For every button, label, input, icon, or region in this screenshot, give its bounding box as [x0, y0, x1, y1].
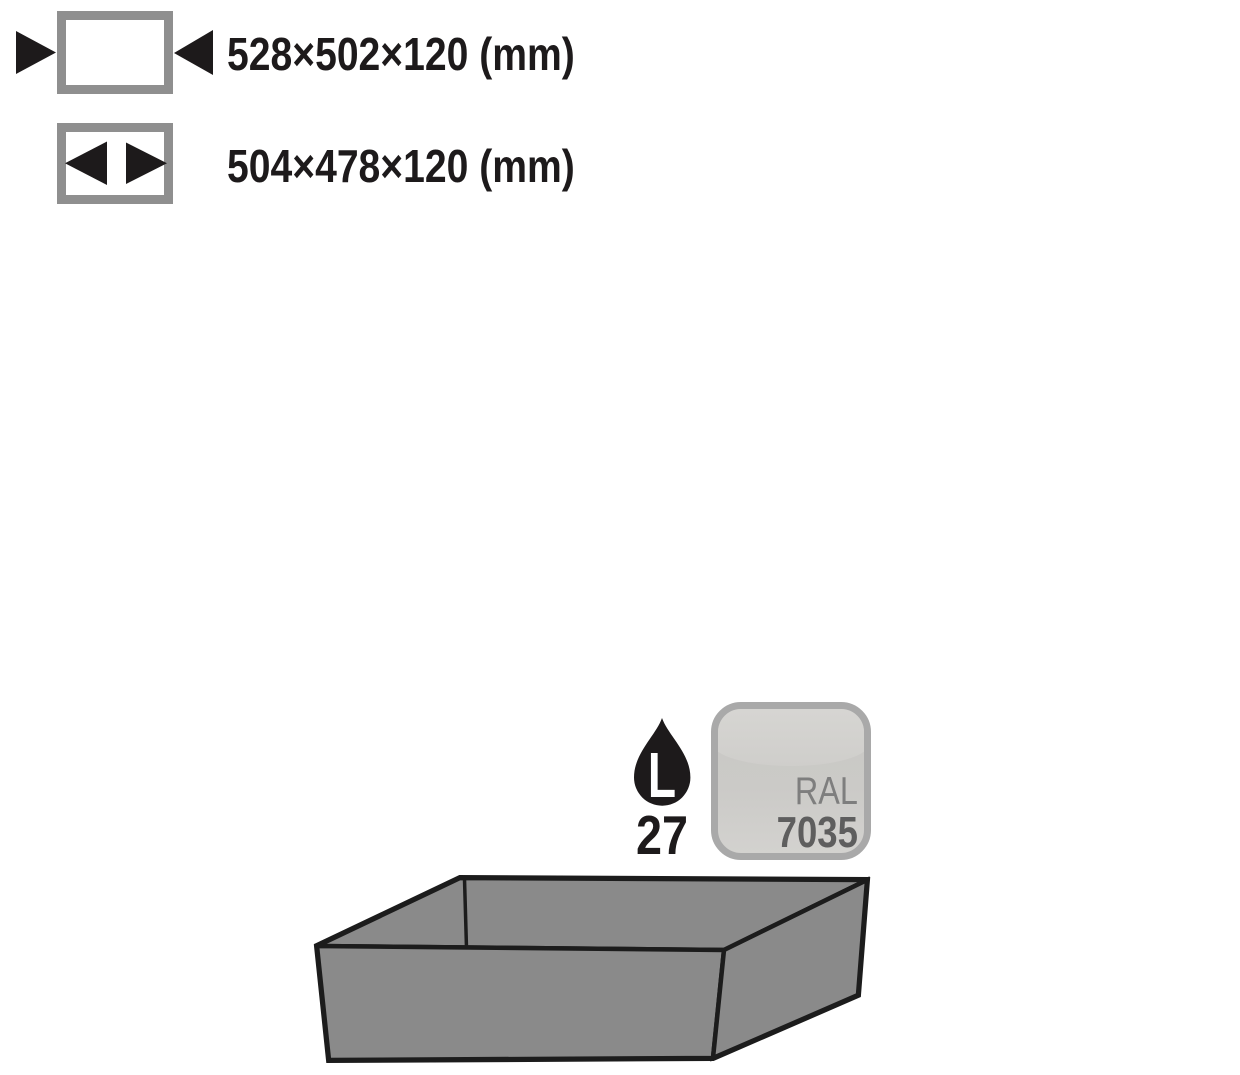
ral-color-badge: RAL 7035	[711, 702, 871, 860]
tray-inner-corner-edge	[465, 879, 467, 948]
arrow-left-icon	[174, 30, 213, 75]
ral-standard-label: RAL	[795, 772, 858, 811]
dimension-frame	[62, 16, 169, 90]
external-dimensions-icon	[10, 9, 220, 99]
external-dimensions-value: 528×502×120 (mm)	[227, 31, 575, 77]
sump-tray-illustration	[290, 850, 890, 1070]
capacity-unit-letter: L	[642, 743, 682, 807]
tray-front-face	[317, 946, 724, 1060]
arrow-right-icon	[16, 31, 56, 74]
internal-dimensions-value: 504×478×120 (mm)	[227, 143, 575, 189]
internal-dimensions-icon	[10, 121, 220, 211]
ral-color-code: 7035	[777, 811, 858, 855]
